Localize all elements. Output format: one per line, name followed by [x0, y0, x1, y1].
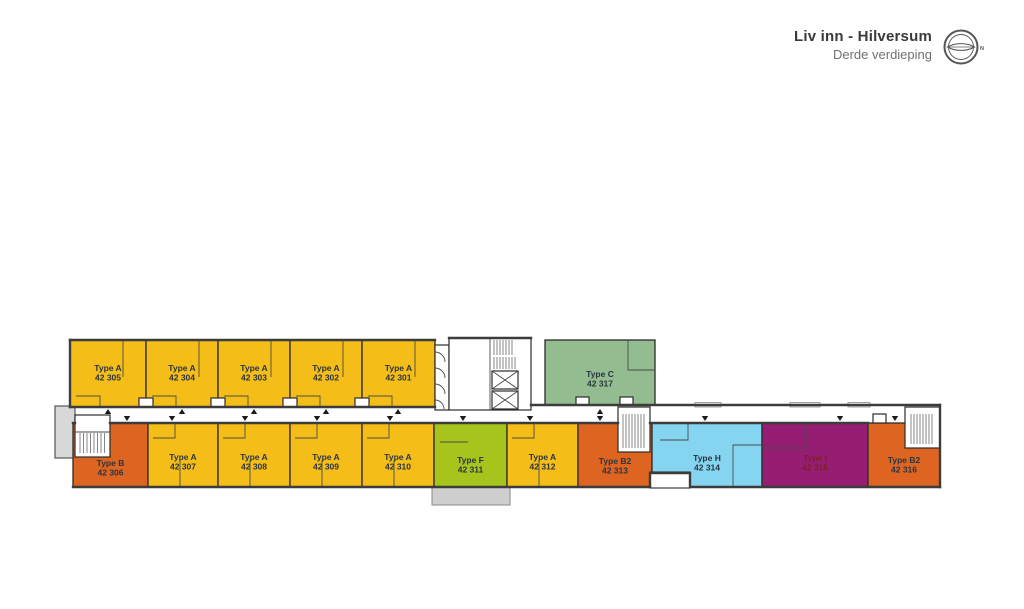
entrance-triangle-icon: [105, 409, 111, 414]
entrance-triangle-icon: [124, 416, 130, 421]
right-stairwell: [905, 407, 940, 448]
unit-label: Type B242 313: [599, 456, 632, 476]
unit-42-308[interactable]: Type A42 308: [218, 423, 290, 487]
entrance-triangle-icon: [702, 416, 708, 421]
unit-label: Type A42 309: [312, 452, 339, 472]
building-notch: [650, 472, 690, 488]
entrance-triangle-icon: [323, 409, 329, 414]
entrance-triangle-icon: [597, 416, 603, 421]
unit-42-311[interactable]: Type F42 311: [434, 423, 507, 487]
entrance-triangle-icon: [892, 416, 898, 421]
entrance-triangle-icon: [597, 409, 603, 414]
unit-label: Type A42 304: [168, 363, 195, 383]
entrance-triangle-icon: [314, 416, 320, 421]
unit-42-310[interactable]: Type A42 310: [362, 423, 434, 487]
terrace: [432, 487, 510, 505]
unit-42-305[interactable]: Type A42 305: [70, 340, 146, 407]
mid-stairwell: [618, 407, 650, 452]
unit-42-302[interactable]: Type A42 302: [290, 340, 362, 407]
unit-label: Type I42 315: [802, 453, 828, 473]
stairs-hatch-icon: [494, 340, 512, 355]
unit-label: Type A42 301: [385, 363, 412, 383]
unit-42-307[interactable]: Type A42 307: [148, 423, 218, 487]
unit-label: Type A42 303: [240, 363, 267, 383]
floorplan-drawing: Type A42 305Type A42 304Type A42 303Type…: [0, 0, 1024, 609]
unit-42-309[interactable]: Type A42 309: [290, 423, 362, 487]
unit-label: Type C42 317: [586, 369, 614, 389]
unit-label: Type B42 306: [97, 458, 125, 478]
left-outside-stair-block: [55, 406, 75, 458]
entrance-triangle-icon: [837, 416, 843, 421]
left-stairwell: [75, 415, 110, 457]
unit-label: Type A42 312: [529, 452, 556, 472]
unit-label: Type F42 311: [457, 455, 484, 475]
unit-42-315[interactable]: Type I42 315: [762, 423, 868, 487]
entrance-triangle-icon: [169, 416, 175, 421]
unit-42-312[interactable]: Type A42 312: [507, 423, 578, 487]
unit-label: Type A42 307: [169, 452, 196, 472]
entrance-triangle-icon: [387, 416, 393, 421]
central-core: [435, 338, 531, 410]
unit-label: Type A42 310: [384, 452, 411, 472]
unit-42-301[interactable]: Type A42 301: [362, 340, 435, 407]
entrance-markers: [105, 409, 898, 421]
unit-42-303[interactable]: Type A42 303: [218, 340, 290, 407]
unit-label: Type A42 305: [94, 363, 121, 383]
entrance-triangle-icon: [460, 416, 466, 421]
unit-label: Type B242 316: [888, 455, 921, 475]
unit-label: Type A42 308: [240, 452, 267, 472]
entrance-triangle-icon: [242, 416, 248, 421]
unit-42-304[interactable]: Type A42 304: [146, 340, 218, 407]
unit-42-317[interactable]: Type C42 317: [545, 340, 655, 405]
entrance-triangle-icon: [395, 409, 401, 414]
unit-label: Type A42 302: [312, 363, 339, 383]
unit-label: Type H42 314: [693, 453, 721, 473]
entrance-triangle-icon: [251, 409, 257, 414]
entrance-triangle-icon: [527, 416, 533, 421]
entrance-triangle-icon: [179, 409, 185, 414]
floorplan-page: Liv inn - Hilversum Derde verdieping N T…: [0, 0, 1024, 609]
